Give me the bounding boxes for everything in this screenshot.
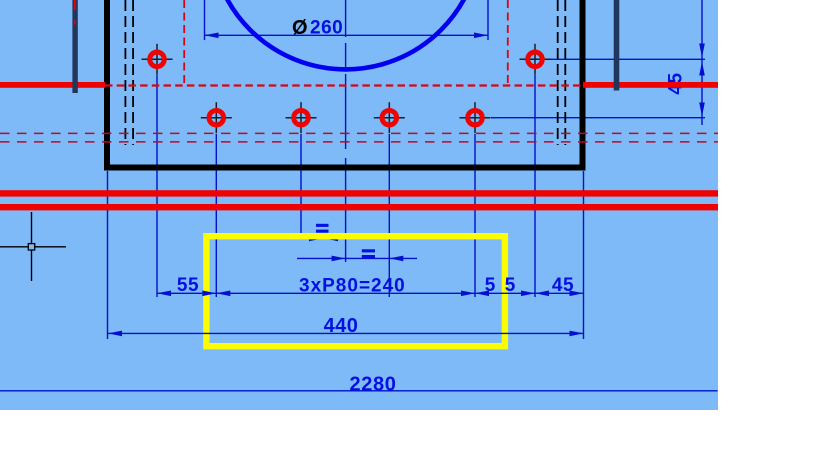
svg-text:2280: 2280: [350, 374, 397, 396]
svg-text:45: 45: [552, 275, 574, 296]
svg-text:5: 5: [485, 275, 496, 296]
svg-text:440: 440: [324, 315, 359, 337]
svg-text:3xP80=240: 3xP80=240: [299, 276, 406, 297]
svg-text:55: 55: [177, 275, 199, 296]
svg-text:5: 5: [505, 275, 516, 296]
svg-text:260: 260: [310, 18, 343, 39]
svg-text:Ø: Ø: [292, 17, 308, 39]
